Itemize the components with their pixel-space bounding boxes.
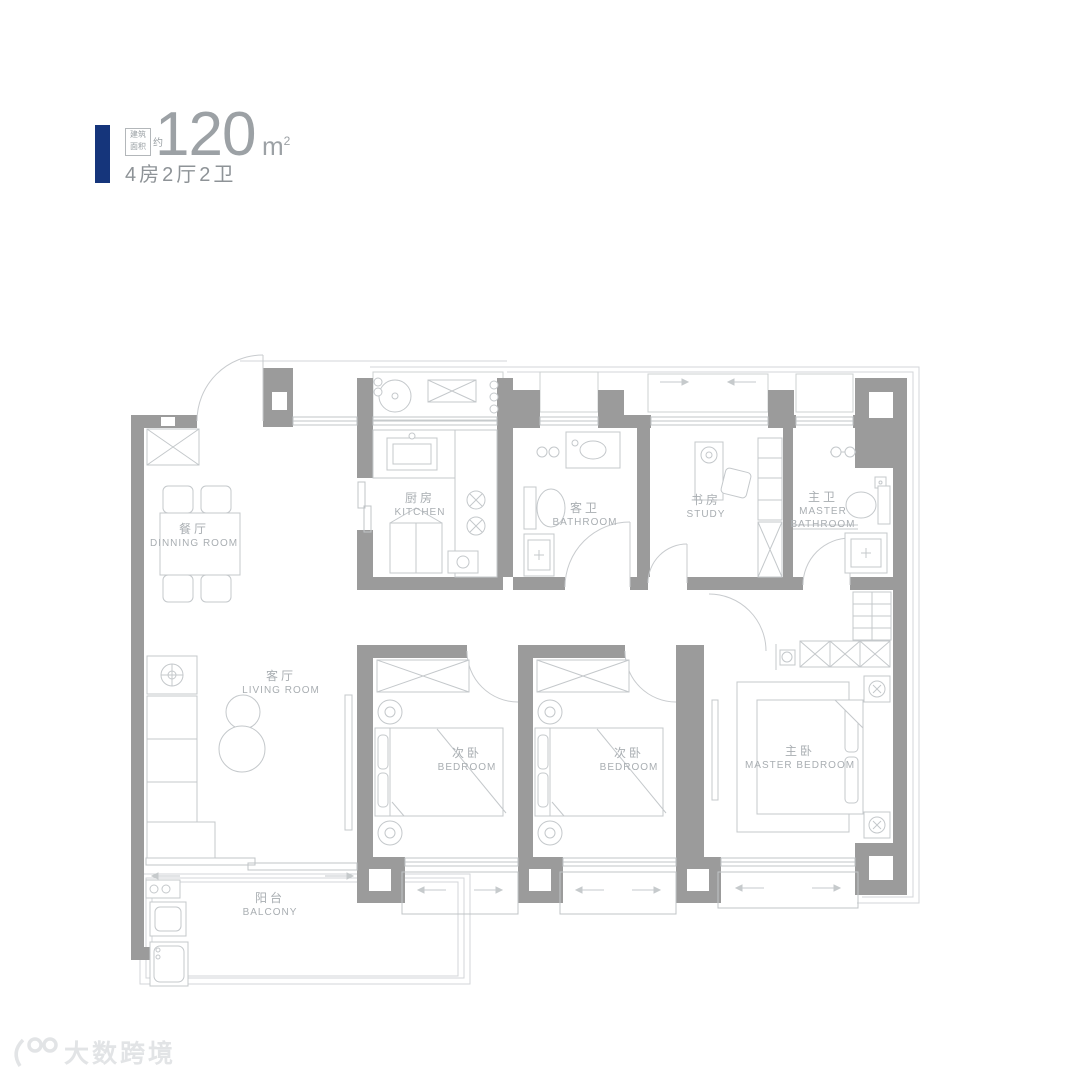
guest-bath-fixtures [524,432,620,576]
entry-door-arc [197,355,263,421]
study-door-arc [648,544,687,583]
bedroom-a-furniture [375,660,506,845]
dining-furniture [147,429,240,602]
watermark-logo-icon [6,1032,58,1072]
master-bedroom-furniture [712,676,890,838]
guest-bath-door-arc [565,522,630,587]
watermark-text: 大数跨境 [64,1034,176,1070]
bedroom-a-door-arc [467,651,518,702]
bedroom-b-furniture [535,660,666,845]
master-suite-storage [776,592,891,670]
floor-plan-svg [0,0,1080,1077]
master-bath-door-arc [803,538,850,585]
floorplan-page: 建筑 面积 约 120 m2 4房2厅2卫 [0,0,1080,1077]
master-bedroom-door-arc [709,594,766,651]
kitchen-furniture [373,430,497,577]
study-furniture [695,438,782,577]
living-furniture [147,656,352,858]
bedroom-b-door-arc [625,651,676,702]
watermark: 大数跨境 [6,1032,176,1072]
balcony-fixtures [146,880,188,986]
platform-items [374,378,498,413]
